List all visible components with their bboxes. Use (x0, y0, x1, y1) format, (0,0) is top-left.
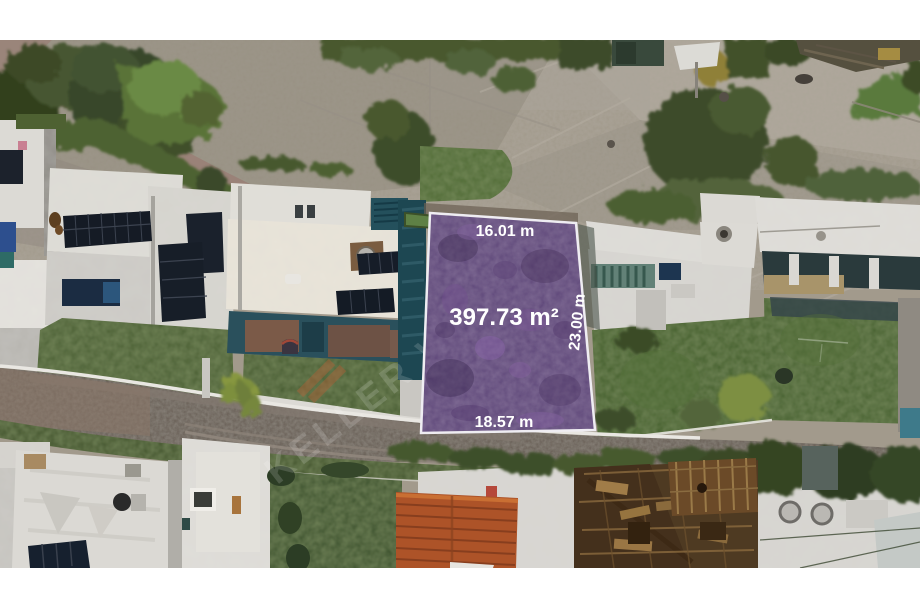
svg-text:16.01 m: 16.01 m (476, 223, 535, 240)
svg-text:397.73 m²: 397.73 m² (449, 304, 558, 331)
svg-text:18.57 m: 18.57 m (475, 414, 534, 431)
